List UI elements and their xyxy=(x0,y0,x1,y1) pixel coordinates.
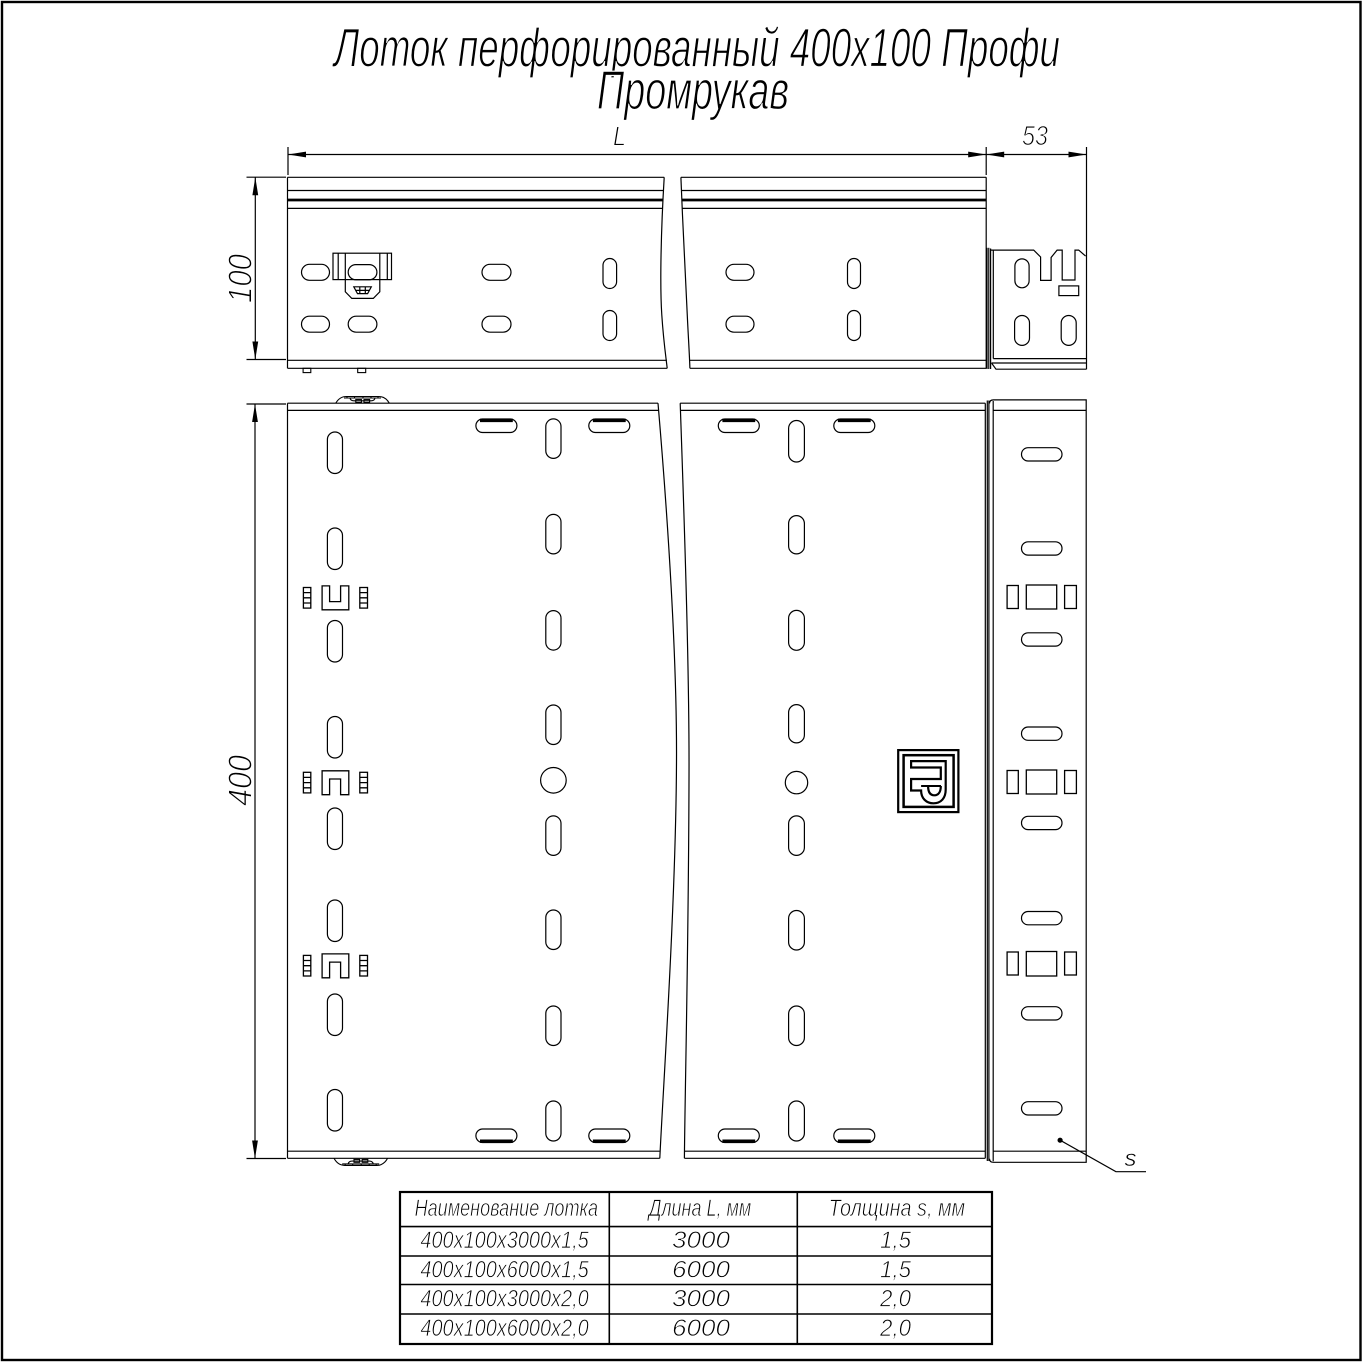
svg-text:3000: 3000 xyxy=(672,1286,730,1313)
svg-text:Длина L, мм: Длина L, мм xyxy=(646,1195,751,1222)
svg-text:2,0: 2,0 xyxy=(879,1315,911,1342)
svg-text:1,5: 1,5 xyxy=(880,1257,911,1284)
svg-text:400: 400 xyxy=(222,754,259,806)
svg-text:6000: 6000 xyxy=(672,1315,730,1342)
svg-text:2,0: 2,0 xyxy=(879,1286,911,1313)
svg-text:53: 53 xyxy=(1022,120,1048,151)
svg-text:Толщина s, мм: Толщина s, мм xyxy=(829,1195,966,1222)
svg-text:1,5: 1,5 xyxy=(880,1227,911,1254)
svg-text:100: 100 xyxy=(222,253,259,303)
svg-text:3000: 3000 xyxy=(672,1227,730,1254)
svg-text:400х100х6000х1,5: 400х100х6000х1,5 xyxy=(420,1257,589,1284)
svg-text:s: s xyxy=(1125,1145,1138,1171)
svg-text:6000: 6000 xyxy=(672,1257,730,1284)
svg-text:Промрукав: Промрукав xyxy=(597,59,789,121)
svg-text:400х100х3000х1,5: 400х100х3000х1,5 xyxy=(420,1227,589,1254)
svg-text:400х100х6000х2,0: 400х100х6000х2,0 xyxy=(420,1315,589,1342)
svg-text:Наименование лотка: Наименование лотка xyxy=(415,1195,598,1222)
svg-text:400х100х3000х2,0: 400х100х3000х2,0 xyxy=(420,1286,589,1313)
svg-text:L: L xyxy=(613,121,626,152)
